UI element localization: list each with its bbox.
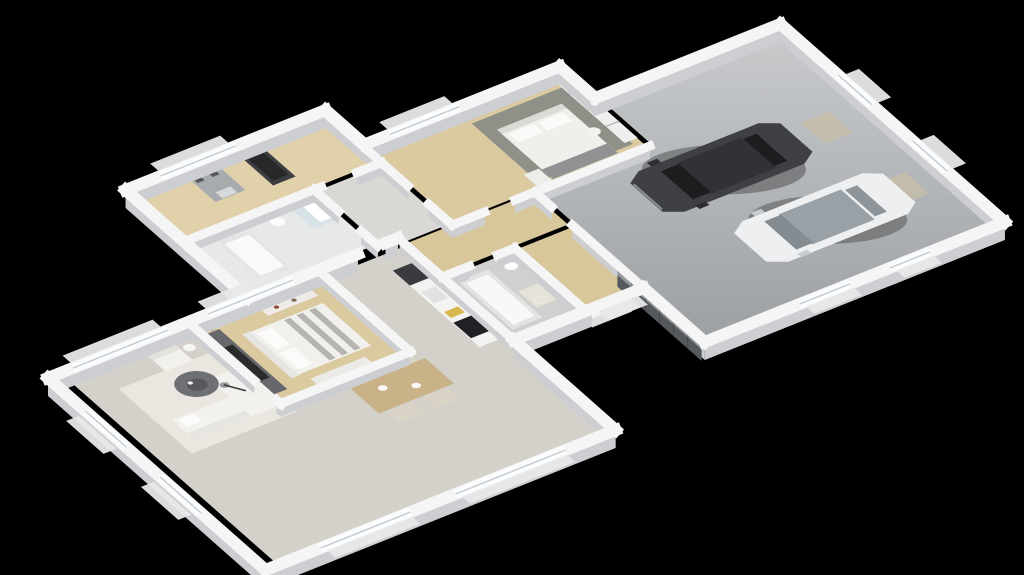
dining-plate-1 bbox=[378, 385, 388, 391]
floorplan-svg bbox=[0, 0, 1024, 575]
coffee-table-tray bbox=[187, 378, 208, 390]
coffee-table-decor bbox=[188, 381, 193, 384]
floorplan-3d-render bbox=[0, 0, 1024, 575]
side-table bbox=[183, 344, 196, 351]
bedroom2-pouf bbox=[586, 127, 601, 136]
master-decor-1 bbox=[274, 306, 279, 309]
dining-plate-2 bbox=[411, 383, 421, 389]
master-decor-2 bbox=[291, 299, 296, 302]
